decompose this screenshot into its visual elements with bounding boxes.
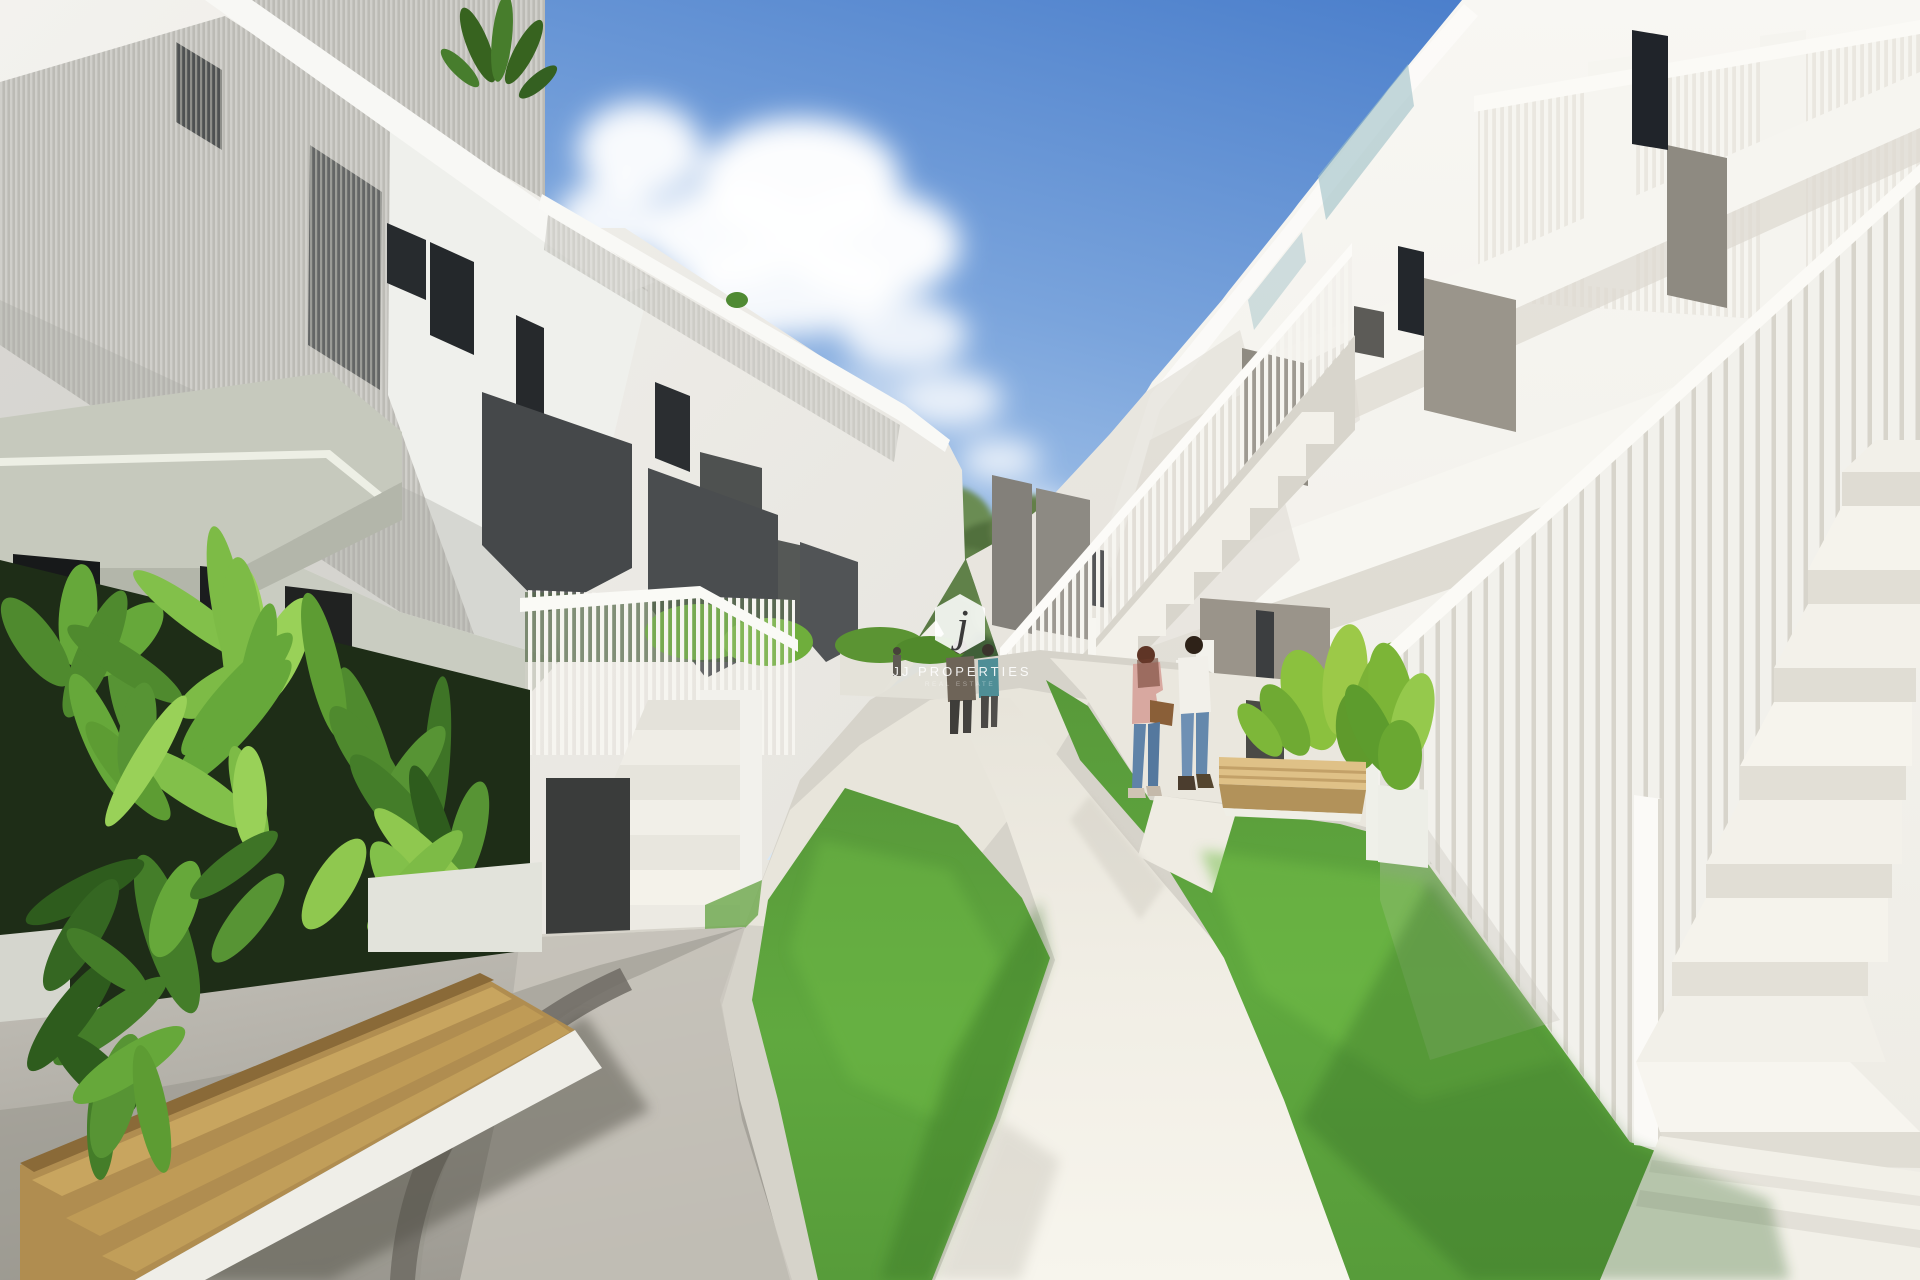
svg-text:JJ PROPERTIES: JJ PROPERTIES	[892, 664, 1031, 679]
svg-text:REAL ESTATE: REAL ESTATE	[925, 681, 995, 688]
